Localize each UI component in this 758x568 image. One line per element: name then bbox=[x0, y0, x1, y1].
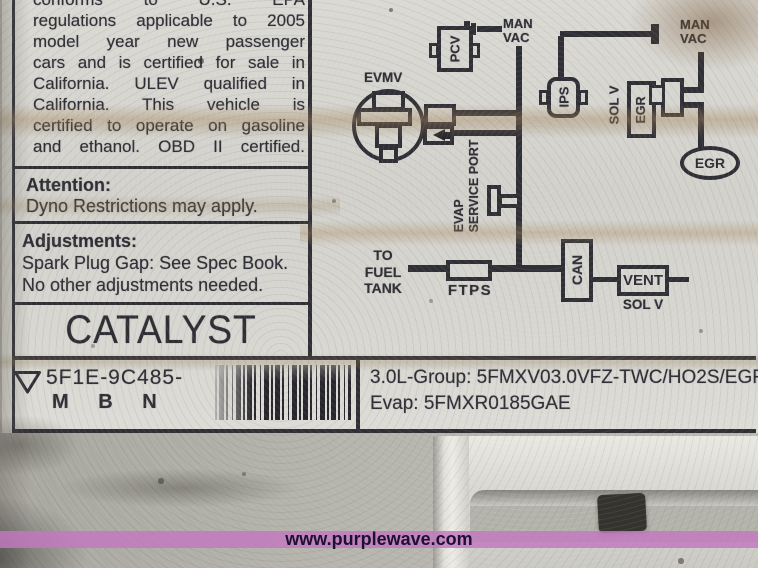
vacuum-line-main-vertical bbox=[516, 46, 522, 270]
ftps-box bbox=[446, 260, 492, 281]
dirt-specks bbox=[0, 0, 2, 2]
attention-heading: Attention: bbox=[26, 175, 306, 196]
pcv-label: PCV bbox=[448, 36, 463, 63]
evap-service-port-label: EVAP SERVICE PORT bbox=[452, 140, 482, 233]
photo-of-emission-label: conforms to U.S. EPA regulations applica… bbox=[0, 0, 758, 568]
engine-group-line: 3.0L-Group: 5FMXV03.0VFZ-TWC/HO2S/EGR/S bbox=[370, 365, 758, 391]
vacuum-line-can-vent bbox=[593, 277, 619, 282]
statement-line: California. This vehicle is bbox=[33, 94, 305, 115]
vent-label: VENT bbox=[623, 272, 663, 289]
adjustments-line-1: Spark Plug Gap: See Spec Book. bbox=[22, 252, 312, 274]
watermark-text: www.purplewave.com bbox=[285, 531, 472, 548]
vacuum-line-ips-top bbox=[560, 31, 655, 37]
evmv-label: EVMV bbox=[364, 71, 402, 85]
ips-label: IPS bbox=[557, 87, 572, 108]
egr-solenoid-port-small bbox=[649, 85, 665, 105]
pcv-tab bbox=[470, 43, 480, 58]
evmv-tip bbox=[379, 146, 398, 163]
catalyst-title: CATALYST bbox=[24, 308, 297, 353]
evmv-stem bbox=[375, 124, 402, 148]
evmv-arrow-box bbox=[423, 125, 454, 145]
statement-line: conforms to U.S. EPA bbox=[33, 0, 305, 10]
certification-text: 3.0L-Group: 5FMXV03.0VFZ-TWC/HO2S/EGR/S … bbox=[370, 365, 758, 423]
statement-line: and ethanol. OBD II certified. bbox=[33, 136, 305, 157]
ips-tab bbox=[539, 90, 549, 105]
evmv-fitting-box bbox=[424, 104, 456, 126]
attention-section: Attention: Dyno Restrictions may apply. bbox=[26, 175, 306, 217]
label-left-border bbox=[12, 0, 15, 432]
watermark-bar: www.purplewave.com bbox=[0, 531, 758, 548]
vacuum-line-egr-valve bbox=[698, 102, 704, 148]
man-vac-right-label: MAN VAC bbox=[680, 18, 710, 46]
statement-line: California. ULEV qualified in bbox=[33, 73, 305, 94]
vacuum-line-vent-out bbox=[669, 277, 689, 282]
manufacturer-triangle-icon bbox=[13, 369, 42, 395]
adjustments-line-2: No other adjustments needed. bbox=[22, 274, 312, 296]
ips-tab bbox=[578, 90, 588, 105]
canister-label: CAN bbox=[569, 255, 585, 285]
vacuum-line-evmv-bottom bbox=[453, 130, 518, 136]
flow-arrow-tail bbox=[443, 132, 450, 139]
statement-line: cars and is certified for sale in bbox=[33, 52, 305, 73]
part-number-prefix: 5F1E-9C485- bbox=[46, 366, 183, 390]
adjustments-section: Adjustments: Spark Plug Gap: See Spec Bo… bbox=[22, 230, 312, 296]
statement-line: regulations applicable to 2005 bbox=[33, 10, 305, 31]
vent-box: VENT bbox=[617, 265, 669, 296]
latch-hole bbox=[597, 493, 647, 533]
egr-solenoid-label: EGR bbox=[634, 96, 648, 123]
service-port-stub bbox=[498, 194, 521, 208]
column-divider bbox=[308, 0, 312, 359]
section-divider bbox=[12, 166, 311, 169]
evap-line: Evap: 5FMXR0185GAE bbox=[370, 391, 758, 417]
bottom-row-top-border bbox=[12, 356, 756, 360]
pcv-tab bbox=[429, 43, 439, 58]
section-divider bbox=[12, 221, 311, 224]
vacuum-line-ips-riser bbox=[558, 36, 564, 78]
section-divider bbox=[12, 302, 311, 305]
egr-valve-label: EGR bbox=[695, 155, 725, 171]
egr-valve-oval: EGR bbox=[680, 146, 740, 180]
vacuum-line-pcv bbox=[477, 26, 502, 32]
adjustments-heading: Adjustments: bbox=[22, 230, 312, 252]
man-vac-left-label: MAN VAC bbox=[503, 17, 533, 45]
to-fuel-tank-label: TO FUEL TANK bbox=[358, 247, 408, 297]
statement-text: conforms to U.S. EPA regulations applica… bbox=[33, 0, 305, 157]
man-vac-fitting-bar bbox=[651, 24, 659, 44]
bottom-row-divider bbox=[356, 356, 360, 433]
statement-line: certified to operate on gasoline bbox=[33, 115, 305, 136]
attention-body: Dyno Restrictions may apply. bbox=[26, 196, 306, 217]
ftps-label: FTPS bbox=[444, 284, 496, 298]
part-number-suffix: M B N bbox=[52, 391, 169, 414]
statement-line: model year new passenger bbox=[33, 31, 305, 52]
vacuum-line-evmv-top bbox=[455, 110, 518, 116]
sol-v-label: SOL V bbox=[607, 86, 622, 125]
vent-sol-v-label: SOL V bbox=[615, 298, 671, 312]
barcode bbox=[215, 365, 351, 420]
